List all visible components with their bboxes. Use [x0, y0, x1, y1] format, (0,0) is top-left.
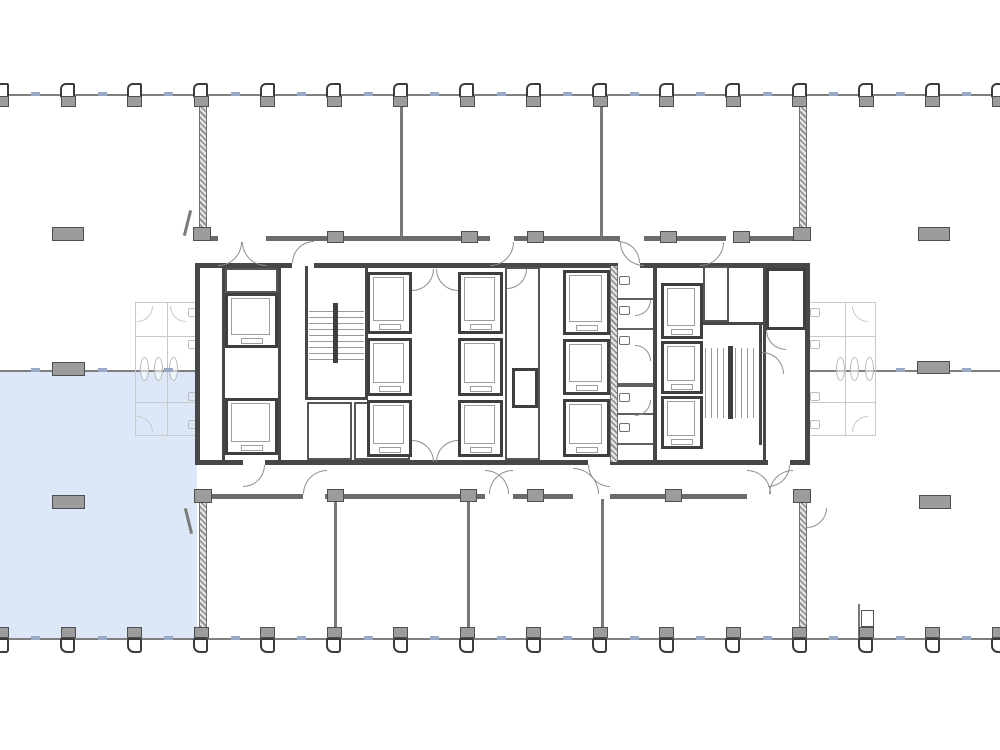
window-mullion-tick — [364, 92, 373, 96]
wall-column-block — [527, 489, 544, 502]
elevator-car — [667, 401, 695, 436]
shaft-wall-hatched — [199, 499, 207, 638]
elevator-door-sill — [576, 385, 598, 391]
grid-column-top-pad — [659, 96, 674, 107]
core-wall — [305, 397, 368, 400]
free-standing-column — [918, 227, 950, 241]
ghost-sink-fixture — [865, 357, 874, 381]
elevator-door-sill — [241, 445, 263, 451]
shaft-wall-hatched — [199, 96, 207, 237]
grid-column-top-pad — [393, 96, 408, 107]
grid-column-bottom-outline — [0, 638, 9, 653]
core-wall — [195, 263, 200, 465]
window-mullion-tick — [829, 92, 838, 96]
wall-column-block — [733, 231, 750, 243]
ghost-partition-line — [845, 302, 846, 436]
grid-column-bottom-pad — [925, 627, 940, 638]
partition-wall-thin — [601, 499, 604, 638]
window-mullion-tick — [630, 92, 639, 96]
window-mullion-tick — [962, 368, 971, 372]
grid-column-bottom-outline — [792, 638, 807, 653]
window-mullion-tick — [630, 636, 639, 640]
wall-column-block — [793, 489, 811, 503]
grid-column-top-pad — [61, 96, 76, 107]
grid-column-bottom-pad — [726, 627, 741, 638]
grid-column-bottom-pad — [792, 627, 807, 638]
ghost-sink-fixture — [154, 357, 163, 381]
grid-column-bottom-outline — [592, 638, 607, 653]
elevator-door-sill — [671, 384, 693, 390]
elevator-car — [569, 275, 602, 322]
elevator-car — [231, 298, 270, 335]
ghost-toilet-fixture — [810, 392, 820, 401]
grid-column-bottom-pad — [526, 627, 541, 638]
window-mullion-tick — [98, 92, 107, 96]
partition-wall — [266, 236, 490, 241]
grid-column-top-pad — [593, 96, 608, 107]
grid-column-bottom-outline — [260, 638, 275, 653]
core-wall — [701, 322, 763, 325]
window-mullion-tick — [497, 92, 506, 96]
elevator-car — [569, 344, 602, 382]
window-mullion-tick — [31, 92, 40, 96]
ghost-partition-line — [135, 402, 200, 403]
elevator-door-sill — [241, 338, 263, 344]
ghost-toilet-fixture — [810, 308, 820, 317]
ghost-sink-fixture — [140, 357, 149, 381]
core-room-heavy — [512, 368, 538, 408]
elevator-car — [373, 277, 404, 321]
small-outline-box — [861, 610, 874, 627]
window-mullion-tick — [164, 368, 173, 372]
grid-column-top-pad — [460, 96, 475, 107]
elevator-car — [667, 288, 695, 326]
elevator-car — [667, 346, 695, 381]
grid-column-bottom-pad — [127, 627, 142, 638]
core-room — [307, 402, 352, 460]
window-mullion-tick — [563, 636, 572, 640]
toilet-fixture — [619, 423, 630, 432]
ghost-partition-line — [808, 336, 876, 337]
window-mullion-tick — [696, 636, 705, 640]
core-wall — [759, 322, 762, 445]
window-mullion-tick — [962, 92, 971, 96]
window-mullion-tick — [231, 636, 240, 640]
core-room — [703, 266, 729, 322]
floor-plan-canvas — [0, 0, 1000, 750]
window-mullion-tick — [98, 636, 107, 640]
wall-column-block — [193, 227, 211, 241]
grid-column-bottom-outline — [925, 638, 940, 653]
core-wall — [314, 263, 618, 268]
elevator-car — [464, 343, 495, 383]
grid-column-bottom-pad — [194, 627, 209, 638]
grid-column-top-pad — [327, 96, 342, 107]
elevator-door-sill — [470, 447, 492, 453]
elevator-door-sill — [671, 329, 693, 335]
grid-column-bottom-outline — [60, 638, 75, 653]
toilet-fixture — [619, 393, 630, 402]
window-mullion-tick — [31, 368, 40, 372]
ghost-sink-fixture — [850, 357, 859, 381]
grid-column-bottom-outline — [193, 638, 208, 653]
ghost-partition-line — [135, 336, 200, 337]
elevator-door-sill — [379, 386, 401, 392]
core-room — [505, 267, 540, 460]
partition-wall-thin — [467, 499, 470, 638]
grid-column-top-pad — [992, 96, 1000, 107]
grid-column-bottom-outline — [127, 638, 142, 653]
core-wall — [610, 460, 768, 465]
door-swing-arc — [807, 508, 827, 528]
core-room — [225, 268, 278, 293]
grid-column-top-pad — [0, 96, 9, 107]
wall-column-block — [327, 489, 344, 502]
window-mullion-tick — [164, 92, 173, 96]
window-mullion-tick — [31, 636, 40, 640]
wall-column-block — [665, 489, 682, 502]
window-mullion-tick — [497, 636, 506, 640]
toilet-stall-partition — [617, 328, 653, 330]
wall-column-block — [527, 231, 544, 243]
grid-column-bottom-pad — [327, 627, 342, 638]
free-standing-column — [917, 361, 950, 374]
wall-column-block — [327, 231, 344, 243]
grid-column-bottom-outline — [326, 638, 341, 653]
shaft-wall-hatched — [799, 96, 807, 237]
wall-column-block — [793, 227, 811, 241]
toilet-fixture — [619, 306, 630, 315]
grid-column-bottom-outline — [659, 638, 674, 653]
grid-column-bottom-pad — [460, 627, 475, 638]
window-mullion-tick — [563, 92, 572, 96]
partition-wall-thin — [600, 102, 603, 237]
window-mullion-tick — [763, 636, 772, 640]
grid-column-top-pad — [859, 96, 874, 107]
wall-column-block — [460, 489, 477, 502]
free-standing-column — [52, 495, 85, 509]
grid-column-bottom-outline — [393, 638, 408, 653]
partition-wall — [644, 236, 726, 241]
grid-column-bottom-pad — [260, 627, 275, 638]
ghost-toilet-fixture — [810, 340, 820, 349]
toilet-stall-partition — [617, 383, 653, 387]
grid-column-bottom-outline — [725, 638, 740, 653]
core-wall — [195, 460, 243, 465]
partition-wall-thin — [400, 102, 403, 237]
window-mullion-tick — [430, 92, 439, 96]
grid-column-bottom-outline — [991, 638, 1000, 653]
core-wall — [790, 460, 810, 465]
window-mullion-tick — [763, 92, 772, 96]
door-swing-arc — [303, 470, 327, 494]
grid-column-bottom-pad — [61, 627, 76, 638]
elevator-door-sill — [470, 386, 492, 392]
grid-column-top-pad — [925, 96, 940, 107]
grid-column-bottom-outline — [858, 638, 873, 653]
window-mullion-tick — [430, 636, 439, 640]
elevator-car — [464, 277, 495, 321]
window-mullion-tick — [297, 92, 306, 96]
window-mullion-tick — [364, 636, 373, 640]
toilet-fixture — [619, 276, 630, 285]
grid-column-top-pad — [127, 96, 142, 107]
elevator-door-sill — [379, 447, 401, 453]
window-mullion-tick — [896, 92, 905, 96]
window-mullion-tick — [829, 636, 838, 640]
grid-column-bottom-pad — [992, 627, 1000, 638]
toilet-stall-partition — [617, 443, 653, 445]
ghost-sink-fixture — [836, 357, 845, 381]
stair-rail — [728, 346, 733, 419]
grid-column-bottom-pad — [593, 627, 608, 638]
ghost-partition-line — [808, 402, 876, 403]
door-leaf — [183, 210, 192, 236]
window-mullion-tick — [297, 636, 306, 640]
window-mullion-tick — [962, 636, 971, 640]
elevator-car — [373, 343, 404, 383]
wall-column-block — [660, 231, 677, 243]
ghost-toilet-fixture — [810, 420, 820, 429]
grid-column-top-pad — [194, 96, 209, 107]
elevator-car — [373, 405, 404, 444]
elevator-door-sill — [576, 447, 598, 453]
core-wall — [278, 266, 281, 462]
core-wall — [305, 266, 308, 400]
shaft-wall-hatched — [799, 499, 807, 638]
elevator-door-sill — [576, 325, 598, 331]
window-mullion-tick — [896, 368, 905, 372]
free-standing-column — [52, 227, 84, 241]
elevator-door-sill — [379, 324, 401, 330]
core-room-heavy — [766, 268, 806, 330]
elevator-car — [464, 405, 495, 444]
grid-column-bottom-outline — [526, 638, 541, 653]
door-swing-arc — [243, 465, 265, 487]
free-standing-column — [919, 495, 951, 509]
grid-column-bottom-outline — [459, 638, 474, 653]
wall-column-block — [194, 489, 212, 503]
free-standing-column — [52, 362, 85, 376]
elevator-car — [231, 403, 270, 442]
grid-column-bottom-pad — [659, 627, 674, 638]
toilet-fixture — [619, 336, 630, 345]
window-mullion-tick — [696, 92, 705, 96]
window-mullion-tick — [231, 92, 240, 96]
elevator-door-sill — [671, 439, 693, 445]
grid-column-top-pad — [260, 96, 275, 107]
grid-column-top-pad — [792, 96, 807, 107]
window-mullion-tick — [164, 636, 173, 640]
partition-wall-thin — [334, 499, 337, 638]
grid-column-top-pad — [526, 96, 541, 107]
core-wall — [653, 266, 657, 462]
grid-column-bottom-pad — [859, 627, 874, 638]
elevator-door-sill — [470, 324, 492, 330]
grid-column-bottom-pad — [393, 627, 408, 638]
window-mullion-tick — [896, 636, 905, 640]
elevator-car — [569, 404, 602, 444]
wall-column-block — [461, 231, 478, 243]
stair-rail — [333, 303, 338, 363]
grid-column-bottom-pad — [0, 627, 9, 638]
shaft-wall-hatched — [610, 266, 618, 462]
door-swing-arc — [292, 241, 314, 263]
window-mullion-tick — [98, 368, 107, 372]
grid-column-top-pad — [726, 96, 741, 107]
